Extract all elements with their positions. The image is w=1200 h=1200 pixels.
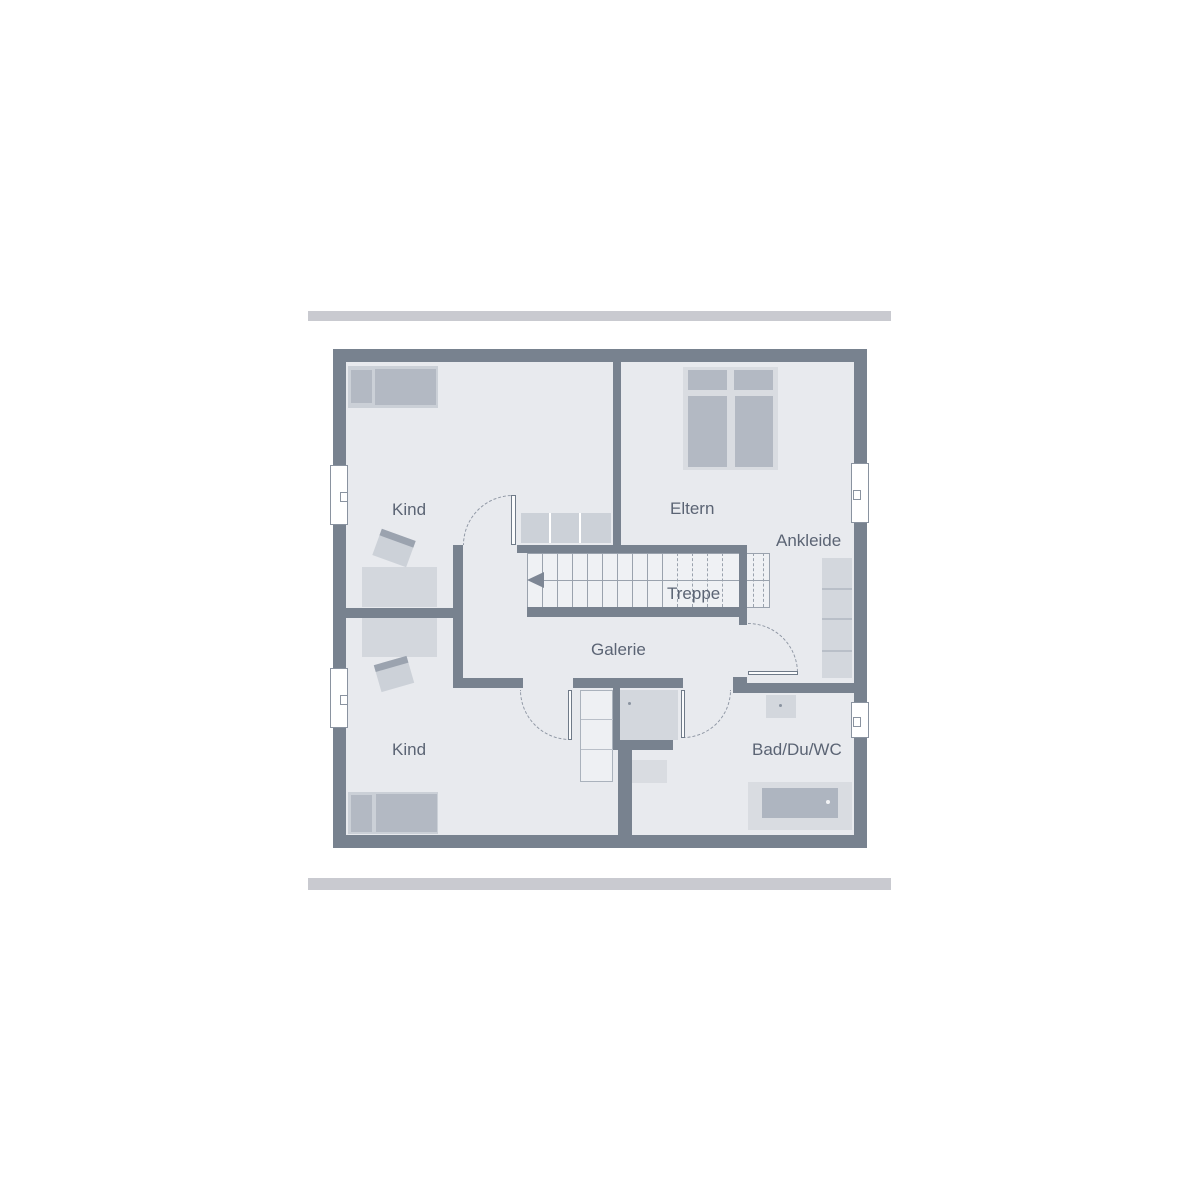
- stairs-direction-arrow-icon: [527, 572, 544, 588]
- outer-wall-right: [854, 349, 867, 848]
- bed-mattress-right: [735, 396, 773, 467]
- wall-kind-eltern: [613, 362, 621, 553]
- wardrobe-shelf-line: [822, 650, 852, 652]
- wall-center-column: [618, 750, 632, 835]
- wardrobe-shelf-line: [822, 588, 852, 590]
- room-label-galerie: Galerie: [591, 640, 646, 660]
- bed-pillow-left: [688, 370, 727, 390]
- bed-mattress-left: [688, 396, 727, 467]
- window-left-upper: [330, 465, 348, 525]
- washbasin-drain: [779, 704, 782, 707]
- window-handle: [853, 717, 861, 727]
- closet-shelf-line: [581, 749, 614, 750]
- room-label-ankleide: Ankleide: [776, 531, 841, 551]
- room-label-kind-top: Kind: [392, 500, 426, 520]
- washbasin: [766, 695, 796, 718]
- window-handle: [340, 492, 348, 502]
- wall-stair-south-parapet: [527, 607, 740, 617]
- wall-closet-divider: [613, 688, 620, 750]
- window-right-lower: [851, 702, 869, 738]
- sideboard-divider: [579, 513, 581, 543]
- wall-stair-north: [517, 545, 747, 553]
- closet-shelf-line: [581, 719, 614, 720]
- room-label-eltern: Eltern: [670, 499, 714, 519]
- shelf-bad: [632, 760, 667, 783]
- room-label-kind-bottom: Kind: [392, 740, 426, 760]
- room-label-bad: Bad/Du/WC: [752, 740, 842, 760]
- desk-kind-bottom: [362, 617, 437, 657]
- outer-wall-bottom: [333, 835, 867, 848]
- bed-pillow-right: [734, 370, 773, 390]
- sideboard-divider: [549, 513, 551, 543]
- closet-knob: [628, 702, 631, 705]
- wardrobe-ankleide: [822, 558, 852, 678]
- bathtub: [762, 788, 838, 818]
- wall-bad-stub: [733, 677, 747, 693]
- desk-kind-top: [362, 567, 437, 607]
- door-leaf-kind-bottom: [568, 690, 572, 740]
- window-left-lower: [330, 668, 348, 728]
- door-leaf-kind-top: [511, 495, 516, 545]
- wall-south-mid: [573, 678, 683, 688]
- room-label-treppe: Treppe: [667, 584, 720, 604]
- window-handle: [340, 695, 348, 705]
- floor-plan-page: Kind Eltern Ankleide Treppe Galerie Kind…: [0, 0, 1200, 1200]
- bed-pillow: [351, 370, 372, 403]
- outer-wall-left: [333, 349, 346, 848]
- door-leaf-ankleide: [748, 671, 798, 675]
- outer-wall-top: [333, 349, 867, 362]
- bed-mattress: [375, 369, 436, 405]
- wall-closet-south: [620, 740, 673, 750]
- bathtub-drain: [826, 800, 830, 804]
- bed-mattress: [376, 794, 437, 832]
- door-leaf-bad: [681, 690, 685, 738]
- bottom-divider-bar: [308, 878, 891, 890]
- window-right-upper: [851, 463, 869, 523]
- wall-bad-north: [747, 683, 854, 693]
- wall-south-left: [453, 678, 523, 688]
- window-handle: [853, 490, 861, 500]
- sideboard: [521, 513, 611, 543]
- stair-walkline: [540, 580, 769, 581]
- closet-kind-bottom: [580, 690, 613, 782]
- wardrobe-shelf-line: [822, 618, 852, 620]
- wall-kind-divider: [346, 608, 463, 618]
- wall-stair-east: [739, 545, 747, 625]
- closet-hall: [620, 690, 678, 740]
- top-divider-bar: [308, 311, 891, 321]
- bed-pillow: [351, 795, 372, 832]
